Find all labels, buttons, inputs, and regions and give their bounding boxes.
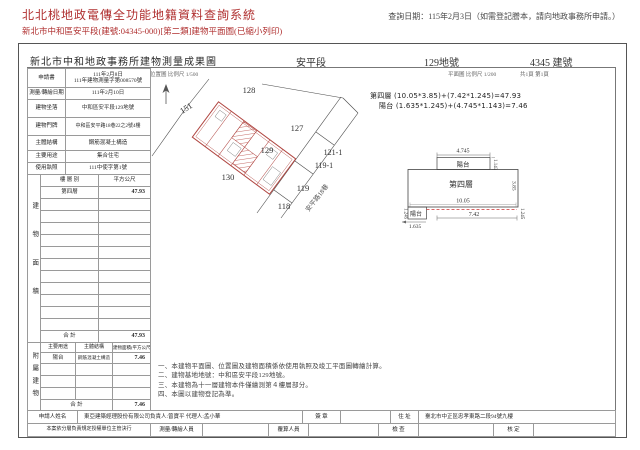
annex-total-row: 合 計 7.46	[28, 400, 151, 411]
empty-row	[28, 247, 151, 259]
parcel-label: 118	[278, 201, 290, 211]
signature-label: 簽 章	[303, 411, 341, 424]
empty-row	[28, 295, 151, 307]
col-header-area: 平方公尺	[99, 175, 151, 187]
empty-row	[28, 388, 151, 400]
row-label: 主要用途	[28, 151, 66, 163]
building-number: 4345 建號	[530, 54, 573, 69]
applicant-name: 東亞建築經理股份有限公司負責人:曾寶平 代理人:孟小華	[78, 411, 303, 424]
scale-plan: 平面圖 比例尺 1/200	[448, 70, 496, 78]
total-area: 47.93	[99, 331, 151, 343]
empty-row	[28, 211, 151, 223]
surveyed-unit-hatch	[233, 147, 258, 173]
row-label: 使用執照	[28, 163, 66, 175]
note-line: 四、本圖以建物登記為準。	[158, 390, 386, 399]
top-balcony-label: 陽台	[457, 160, 470, 169]
total-label: 合 計	[41, 331, 99, 343]
row-value: 111年2月10日	[66, 88, 151, 100]
floor-area: 47.93	[99, 187, 151, 199]
parcel-label: 129	[261, 145, 274, 155]
parcel-label: 119	[297, 183, 309, 193]
north-arrow-icon	[163, 84, 170, 104]
info-row-application: 申請書 111年2月8日 111年建物測量字第008570號	[28, 69, 151, 88]
approve-label: 核 定	[494, 424, 534, 437]
parcel-label: 151	[178, 100, 194, 115]
info-row-license: 使用執照 111中使字第1號	[28, 163, 151, 175]
total-label: 合 計	[41, 400, 113, 411]
land-registry-printout: 北北桃地政電傳全功能地籍資料查詢系統 查詢日期：115年2月3日（如需登記謄本，…	[0, 0, 640, 450]
row-label: 建物門牌	[28, 118, 66, 136]
row-value: 集合住宅	[66, 151, 151, 163]
doc-title: 新北市中和地政事務所建物測量成果圖	[30, 53, 217, 68]
recheck-cell	[309, 424, 379, 437]
authority-note: 本案依分層負責規定授權單位主管決行	[28, 424, 151, 437]
col-header-structure: 主體結構	[76, 343, 113, 353]
parcel-label: 128	[243, 85, 256, 95]
col-header-floor: 樓 層 別	[41, 175, 99, 187]
info-row-use: 主要用途 集合住宅	[28, 151, 151, 163]
footer-row-applicant: 申請人姓名 東亞建築經理股份有限公司負責人:曾寶平 代理人:孟小華 簽 章 住 …	[27, 410, 616, 424]
col-header-use: 主要用途	[41, 343, 76, 353]
row-label: 建物坐落	[28, 100, 66, 118]
row-label: 申請書	[28, 69, 66, 88]
surveyor-label: 測量/轉繪人員	[151, 424, 203, 437]
site-map: 128 151 127 129 121-1 119-1 130 119 118 …	[148, 70, 400, 220]
approve-cell	[534, 424, 616, 437]
empty-row	[28, 199, 151, 211]
inspect-label: 檢 查	[379, 424, 419, 437]
surveyor-cell	[203, 424, 269, 437]
empty-row	[28, 223, 151, 235]
row-label: 測量/轉繪日期	[28, 88, 66, 100]
parcel-label: 130	[222, 172, 235, 182]
empty-row	[28, 319, 151, 331]
building-footprint	[192, 102, 295, 194]
floor-label: 第四層	[449, 179, 473, 189]
floor-plan: 4.745 陽台 1.143 第四層 3.85 10.05 陽台 7.42 1.…	[395, 142, 530, 234]
document-subtitle: 新北市中和區安平段(建號:04345-000)[第二類]建物平面圖(已縮小列印)	[22, 25, 282, 37]
dim-main-height: 3.85	[511, 181, 517, 191]
dim-top-width: 4.745	[456, 149, 469, 155]
dim-left-height: 1.245	[403, 208, 408, 220]
annex-table-corner: 附屬建物	[28, 343, 41, 411]
info-row-structure: 主體結構 鋼筋混凝土構造	[28, 136, 151, 151]
notes: 一、本建物平面圖、位置圖及建物面積係依使用執照及竣工平面圖轉繪計算。 二、建物基…	[158, 362, 386, 400]
annex-structure: 鋼筋混凝土構造	[76, 353, 113, 364]
annex-table: 附屬建物 主要用途 主體結構 建物面積(平方公尺) 陽台 鋼筋混凝土構造 7.4…	[27, 342, 151, 411]
empty-row	[28, 307, 151, 319]
note-line: 二、建物基地地號：中和區安平段129地號。	[158, 371, 386, 380]
row-value: 中和區安平路18巷22之2號4樓	[66, 118, 151, 136]
floor-total-row: 合 計 47.93	[28, 331, 151, 343]
address-value: 臺北市中正區忠孝東路二段94號九樓	[419, 411, 616, 424]
row-value: 111中使字第1號	[66, 163, 151, 175]
row-value: 鋼筋混凝土構造	[66, 136, 151, 151]
total-area: 7.46	[113, 400, 151, 411]
info-table: 申請書 111年2月8日 111年建物測量字第008570號 測量/轉繪日期 1…	[27, 68, 151, 175]
note-line: 三、本建物為十一層建物本件僅繪測第４樓層部分。	[158, 381, 386, 390]
info-row-survey-date: 測量/轉繪日期 111年2月10日	[28, 88, 151, 100]
section-name: 安平段	[296, 54, 326, 69]
row-value: 111年2月8日 111年建物測量字第008570號	[66, 69, 151, 88]
annex-area: 7.46	[113, 353, 151, 364]
col-header-area: 建物面積(平方公尺)	[113, 343, 151, 353]
annex-row: 陽台 鋼筋混凝土構造 7.46	[28, 353, 151, 364]
formula-balcony: 陽台 (1.635*1.245)+(4.745*1.143)=7.46	[379, 101, 528, 111]
empty-row	[28, 283, 151, 295]
formula-floor: 第四層 (10.05*3.85)+(7.42*1.245)=47.93	[370, 91, 521, 101]
floor-area-table: 建物面積 樓 層 別 平方公尺 第四層 47.93 合 計 47.93	[27, 174, 151, 343]
annex-use: 陽台	[41, 353, 76, 364]
parcel-label: 121-1	[324, 148, 343, 157]
row-value: 中和區安平段129地號	[66, 100, 151, 118]
dim-balcony-width: 1.635	[409, 224, 422, 230]
signature-cell	[341, 411, 391, 424]
inspect-cell	[419, 424, 494, 437]
dim-main-width: 10.05	[456, 199, 470, 205]
empty-row	[28, 364, 151, 376]
recheck-label: 覆算人員	[269, 424, 309, 437]
surveyed-unit-hatch	[232, 122, 257, 148]
dim-top-height: 1.143	[492, 159, 497, 171]
floor-table-corner: 建物面積	[28, 175, 41, 343]
address-label: 住 址	[391, 411, 419, 424]
page-indicator: 共1頁 第1頁	[520, 70, 549, 78]
info-row-doorplate: 建物門牌 中和區安平路18巷22之2號4樓	[28, 118, 151, 136]
floor-row: 第四層 47.93	[28, 187, 151, 199]
land-number: 129地號	[424, 54, 459, 69]
empty-row	[28, 235, 151, 247]
row-label: 主體結構	[28, 136, 66, 151]
empty-row	[28, 271, 151, 283]
footer-row-approval: 本案依分層負責規定授權單位主管決行 測量/轉繪人員 覆算人員 檢 查 核 定	[27, 423, 616, 437]
parcel-label: 119-1	[315, 161, 333, 170]
dim-bottom-width: 7.42	[469, 212, 480, 218]
info-row-location: 建物坐落 中和區安平段129地號	[28, 100, 151, 118]
parcel-label: 127	[291, 123, 304, 133]
bottom-balcony-label: 陽台	[410, 210, 422, 218]
system-title: 北北桃地政電傳全功能地籍資料查詢系統	[22, 6, 256, 23]
dim-right-height: 1.245	[519, 208, 524, 220]
floor-name: 第四層	[41, 187, 99, 199]
query-date: 查詢日期：115年2月3日（如需登記謄本，請向地政事務所申請。）	[388, 11, 620, 22]
note-line: 一、本建物平面圖、位置圖及建物面積係依使用執照及竣工平面圖轉繪計算。	[158, 362, 386, 371]
empty-row	[28, 259, 151, 271]
empty-row	[28, 376, 151, 388]
applicant-label: 申請人姓名	[28, 411, 78, 424]
